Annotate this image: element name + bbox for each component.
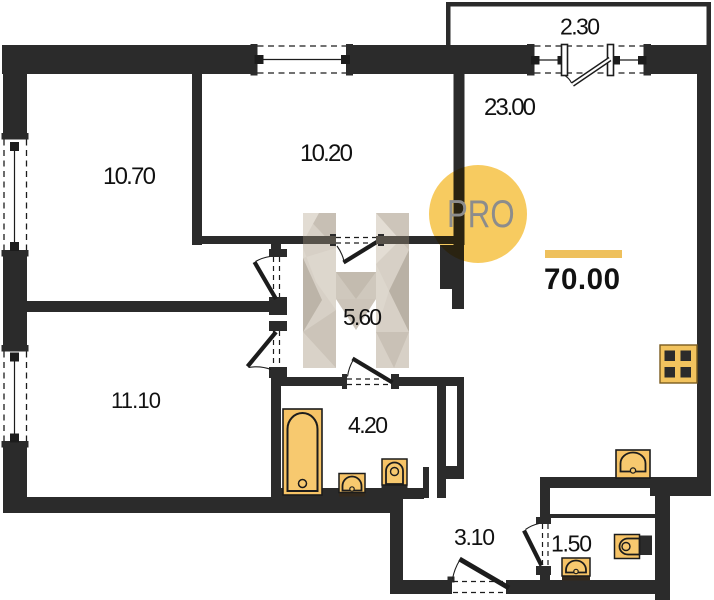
svg-text:10.20: 10.20 <box>300 140 353 167</box>
svg-text:11.10: 11.10 <box>111 388 161 413</box>
svg-text:1.50: 1.50 <box>551 531 592 557</box>
svg-text:2.30: 2.30 <box>560 14 600 40</box>
svg-text:PRO: PRO <box>447 193 515 236</box>
svg-text:70.00: 70.00 <box>544 263 620 296</box>
svg-text:10.70: 10.70 <box>103 163 156 190</box>
svg-text:23.00: 23.00 <box>484 94 536 121</box>
svg-text:3.10: 3.10 <box>454 524 495 550</box>
svg-text:4.20: 4.20 <box>348 412 388 438</box>
svg-text:5.60: 5.60 <box>343 304 382 330</box>
